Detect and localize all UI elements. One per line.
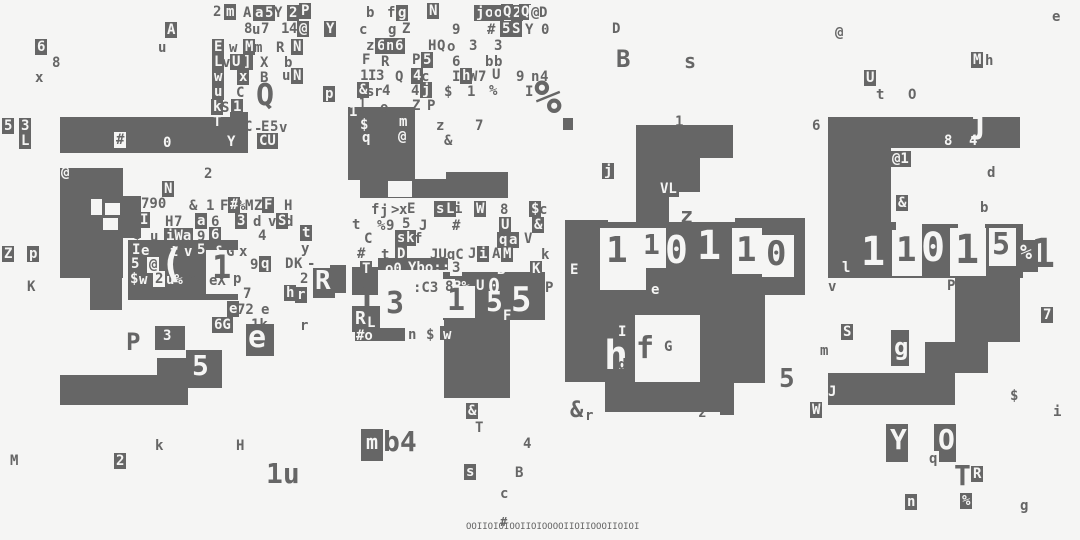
glyph: m	[366, 432, 378, 452]
glyph: t	[300, 225, 312, 241]
glyph: c	[359, 23, 367, 37]
glyph: #o	[356, 329, 373, 343]
glyph: E	[407, 202, 415, 216]
glyph: 9	[452, 23, 460, 37]
glyph: 3	[376, 69, 384, 83]
glyph: E	[570, 263, 578, 277]
glyph: r	[300, 319, 308, 333]
glyph: eX	[209, 274, 226, 288]
glyph: u	[252, 23, 260, 37]
glyph: p	[233, 272, 241, 286]
glyph: r	[585, 409, 593, 423]
glyph: 8	[944, 134, 952, 148]
glyph: B	[515, 466, 523, 480]
noise-window	[91, 199, 102, 215]
noise-block	[157, 358, 187, 375]
noise-block	[718, 126, 731, 156]
glyph: 2	[287, 5, 299, 21]
glyph: 5	[511, 283, 531, 317]
noise-block	[360, 179, 508, 198]
glyph: z	[366, 39, 374, 53]
glyph: P	[126, 330, 140, 354]
glyph: A	[243, 6, 251, 20]
glyph: 3	[494, 39, 502, 53]
glyph: $	[1010, 389, 1018, 403]
glyph: 1	[861, 232, 885, 272]
glyph: d	[285, 215, 293, 229]
glyph: 7	[174, 215, 182, 229]
glyph: W	[469, 70, 477, 84]
glyph: 1	[643, 231, 660, 259]
glyph: l	[842, 261, 850, 275]
glyph: #	[487, 23, 495, 37]
glyph: H	[284, 199, 292, 213]
glyph: g	[1020, 499, 1028, 513]
glyph: #	[357, 247, 365, 261]
glyph: n	[905, 494, 917, 510]
glyph: b	[980, 201, 988, 215]
noise-block	[563, 118, 573, 130]
glyph: p	[27, 246, 39, 262]
glyph: 1u	[266, 460, 300, 488]
glyph: &	[466, 403, 478, 419]
glyph: X	[260, 56, 268, 70]
glyph: g	[396, 5, 408, 21]
glyph: 1	[447, 286, 465, 316]
glyph: 8	[52, 56, 60, 70]
glyph: R	[381, 55, 389, 69]
glyph: b4	[383, 428, 417, 456]
glyph: g	[388, 23, 396, 37]
glyph: A	[165, 22, 177, 38]
glyph: &	[444, 134, 452, 148]
glyph: M	[10, 454, 18, 468]
glyph: F	[362, 53, 370, 67]
glyph: u	[150, 230, 158, 244]
glyph: q	[927, 451, 939, 467]
glyph: $	[444, 85, 452, 99]
glyph: 0	[541, 23, 549, 37]
glyph: 0	[163, 136, 171, 150]
glyph: 7	[243, 287, 251, 301]
glyph: Y	[525, 23, 533, 37]
glyph: Y	[274, 6, 282, 20]
glyph: N	[427, 3, 439, 19]
glyph: x	[237, 69, 249, 85]
glyph: @1	[890, 151, 911, 167]
glyph: C	[364, 232, 372, 246]
glyph: M	[245, 199, 253, 213]
glyph: 5	[197, 243, 205, 257]
glyph: Z	[412, 99, 420, 113]
noise-block	[720, 295, 765, 383]
glyph: N	[162, 181, 174, 197]
glyph: R	[276, 41, 284, 55]
glyph: f	[414, 232, 422, 246]
glyph: &	[532, 217, 544, 233]
glyph: o	[380, 101, 388, 115]
glyph: d	[618, 358, 626, 372]
glyph: j	[380, 204, 388, 218]
glyph: 7	[1041, 307, 1053, 323]
glyph: K	[294, 257, 302, 271]
glyph: k	[541, 248, 549, 262]
glyph: e	[248, 323, 266, 353]
glyph: y	[301, 242, 309, 256]
glyph: 5	[402, 217, 410, 231]
glyph: R	[971, 466, 983, 482]
glyph: u%	[166, 273, 183, 287]
glyph: 9	[516, 70, 524, 84]
glyph: T	[475, 421, 483, 435]
glyph: R	[355, 310, 366, 328]
noise-block	[828, 117, 1020, 148]
glyph: 3	[19, 118, 31, 134]
glyph: d	[987, 166, 995, 180]
glyph: e	[651, 283, 659, 297]
glyph: E	[212, 39, 224, 55]
glyph: @	[61, 166, 69, 180]
glyph: 1	[675, 115, 683, 129]
glyph: &	[570, 400, 583, 422]
glyph: $	[133, 228, 141, 242]
glyph: z	[436, 119, 444, 133]
glyph: 3	[163, 329, 171, 343]
glyph: J	[828, 385, 836, 399]
glyph: S	[841, 324, 853, 340]
glyph: A	[492, 247, 500, 261]
noise-window	[388, 181, 412, 197]
glyph: f	[636, 334, 654, 364]
noise-block	[925, 342, 988, 373]
glyph: VL	[658, 181, 679, 197]
glyph: L	[248, 271, 256, 285]
noise-block	[720, 383, 734, 415]
glyph: I	[525, 85, 533, 99]
glyph: t	[352, 218, 360, 232]
glyph: J	[468, 247, 476, 261]
glyph: u	[212, 84, 224, 100]
glyph: S	[221, 101, 229, 115]
glyph: @	[297, 21, 309, 37]
glyph: i	[1053, 405, 1061, 419]
glyph: g	[894, 335, 908, 359]
glyph: N	[291, 68, 303, 84]
glyph: &	[476, 344, 484, 358]
glyph: 1	[896, 233, 916, 267]
noise-window	[105, 203, 120, 215]
noise-block	[60, 117, 232, 153]
glyph: $	[130, 272, 138, 286]
glyph: ]	[358, 98, 366, 112]
glyph: P	[299, 3, 311, 19]
glyph: 5	[192, 352, 209, 380]
glyph: P	[412, 53, 420, 67]
glyph: I	[132, 243, 140, 257]
glyph: 5	[779, 366, 795, 392]
glyph: 3	[386, 289, 404, 319]
glyph: Q	[395, 70, 403, 84]
glyph: j	[420, 82, 432, 98]
glyph: 1	[697, 226, 721, 266]
glyph: @	[398, 130, 406, 144]
glyph: 4	[258, 229, 266, 243]
glyph: 0	[766, 237, 786, 271]
glyph: 0	[921, 228, 945, 268]
glyph: $	[426, 328, 434, 342]
glyph: K	[530, 261, 542, 277]
glyph: 6	[812, 119, 820, 133]
glyph: o0	[385, 262, 402, 276]
glyph: R	[315, 268, 331, 294]
glyph: h	[985, 54, 993, 68]
glyph: P	[545, 281, 553, 295]
glyph: 3	[450, 260, 462, 276]
noise-block	[605, 382, 730, 412]
glyph: Q	[437, 39, 445, 53]
glyph: F	[503, 309, 511, 323]
noise-window	[103, 218, 118, 230]
glyph: D	[612, 22, 620, 36]
glyph: f	[371, 203, 379, 217]
glyph: m	[820, 344, 828, 358]
glyph: U	[499, 217, 511, 233]
glyph: 4	[523, 437, 531, 451]
glyph: V	[524, 232, 532, 246]
glyph: v	[279, 121, 287, 135]
glyph: L	[19, 133, 31, 149]
glyph: z	[698, 406, 706, 420]
glyph: U	[492, 68, 500, 82]
glyph: H	[165, 215, 173, 229]
glyph: Y	[227, 135, 235, 149]
glyph: &	[189, 199, 197, 213]
glyph: 4	[411, 84, 419, 98]
glyph: x	[239, 245, 247, 259]
glyph: k	[155, 439, 163, 453]
glyph: 2	[204, 167, 212, 181]
glyph: f	[387, 6, 395, 20]
glyph: 3	[235, 213, 247, 229]
glyph: e	[1052, 10, 1060, 24]
glyph: F	[262, 197, 274, 213]
glyph: c	[539, 203, 547, 217]
glyph: 6	[35, 39, 47, 55]
glyph: w	[229, 41, 237, 55]
noise-block	[828, 373, 955, 405]
glyph: E	[261, 120, 269, 134]
glyph: H	[236, 439, 244, 453]
glyph: 5	[486, 288, 503, 316]
glyph: t	[876, 88, 884, 102]
glyph: #	[114, 132, 126, 148]
noise-block	[955, 278, 1020, 342]
glyph: O	[908, 88, 916, 102]
glyph: #	[452, 219, 460, 233]
glyph: 7	[478, 70, 486, 84]
glyph: :C3	[413, 281, 438, 295]
glyph: v	[184, 245, 192, 259]
glyph: w	[443, 328, 451, 342]
glyph: U	[476, 279, 484, 293]
glyph: 1	[231, 99, 243, 115]
glyph: 6	[209, 227, 221, 243]
glyph: v	[828, 280, 836, 294]
glyph: 7	[261, 22, 269, 36]
glyph: Ybo::	[408, 261, 450, 275]
glyph: CU	[257, 133, 278, 149]
glyph: e	[141, 244, 149, 258]
glyph: t	[381, 248, 389, 262]
glyph: 4	[969, 134, 977, 148]
glyph: Q	[256, 81, 274, 111]
glyph: &	[896, 195, 908, 211]
glyph: 6G	[212, 317, 233, 333]
glyph: 6	[452, 55, 460, 69]
glyph: 790	[141, 197, 166, 211]
glyph: @	[835, 26, 843, 40]
glyph: K	[27, 280, 35, 294]
glyph: i	[477, 246, 489, 262]
glyph: 9	[386, 219, 394, 233]
glyph: 1	[206, 199, 214, 213]
glyph: w	[139, 273, 147, 287]
glyph: Y	[890, 426, 907, 454]
glyph: W	[474, 201, 486, 217]
glyph: 2	[213, 5, 221, 19]
glyph: c	[500, 487, 508, 501]
glyph: 7	[475, 119, 483, 133]
glyph: ]	[241, 54, 253, 70]
glyph: T	[213, 115, 221, 129]
glyph: n	[408, 328, 416, 342]
glyph: Z	[402, 22, 410, 36]
glyph: %	[489, 84, 497, 98]
glyph: $	[188, 273, 196, 287]
glyph: U	[864, 70, 876, 86]
glyph: d	[253, 215, 261, 229]
glyph: %	[960, 493, 972, 509]
glyph: 1	[1031, 234, 1055, 274]
glyph: 6	[393, 38, 405, 54]
glyph: 1	[467, 85, 475, 99]
glyph: m	[399, 115, 407, 129]
glyph: C	[244, 120, 252, 134]
glyph: 72	[237, 303, 254, 317]
glyph: q	[362, 131, 370, 145]
glyph: OOIIOIOIOOIIOIOOOOIIOIIOOOIIOIOI	[466, 523, 639, 532]
glyph: o	[447, 40, 455, 54]
glyph: 3	[469, 39, 477, 53]
glyph: B	[616, 47, 630, 71]
glyph: s	[464, 464, 476, 480]
glyph: i	[454, 202, 462, 216]
glyph: O	[938, 426, 955, 454]
glyph: D	[539, 6, 547, 20]
glyph: 1	[736, 233, 756, 267]
glyph: P	[947, 279, 955, 293]
captcha-canvas: 2mAa5Y2PbfgNjooQ2Q@DeA8u714@YcgZ9#5SY0D@…	[0, 0, 1080, 540]
glyph: e	[261, 303, 269, 317]
glyph: 5	[421, 52, 433, 68]
glyph: b	[366, 6, 374, 20]
glyph: 1	[955, 230, 979, 270]
glyph: M	[971, 52, 983, 68]
glyph: 1	[90, 246, 117, 290]
glyph: 1	[606, 233, 628, 269]
glyph: C	[236, 86, 244, 100]
glyph: 1	[349, 105, 357, 119]
glyph: M	[501, 246, 513, 262]
glyph: 5	[270, 120, 278, 134]
glyph: 2	[300, 272, 308, 286]
glyph: a	[195, 213, 207, 229]
glyph: T	[954, 462, 971, 490]
glyph: s	[684, 51, 696, 71]
noise-block	[60, 375, 188, 405]
glyph: G	[664, 340, 672, 354]
glyph: 5	[992, 230, 1010, 260]
glyph: %	[377, 219, 385, 233]
glyph: Y	[324, 21, 336, 37]
glyph: 5	[131, 257, 139, 271]
glyph: w	[212, 69, 224, 85]
glyph: S	[417, 115, 425, 129]
glyph: T	[360, 261, 372, 277]
glyph: m	[254, 41, 262, 55]
glyph: 2	[153, 271, 165, 287]
glyph: S	[510, 21, 522, 37]
glyph: 4	[382, 84, 390, 98]
glyph: 5	[2, 118, 14, 134]
glyph: I	[138, 212, 150, 228]
glyph: N	[291, 39, 303, 55]
glyph: D	[395, 246, 407, 262]
glyph: z	[680, 206, 693, 228]
glyph: j	[602, 163, 614, 179]
glyph: u	[158, 41, 166, 55]
glyph: m	[224, 4, 236, 20]
glyph: %	[534, 74, 562, 120]
glyph: H	[428, 39, 436, 53]
glyph: W	[810, 402, 822, 418]
glyph: p	[323, 86, 335, 102]
glyph: 2	[114, 453, 126, 469]
glyph: q	[259, 256, 271, 272]
glyph: r	[295, 287, 307, 303]
glyph: x	[35, 71, 43, 85]
glyph: 0	[665, 231, 688, 269]
glyph: 8	[500, 203, 508, 217]
glyph: Z	[2, 246, 14, 262]
glyph: P	[427, 99, 435, 113]
glyph: u	[282, 69, 290, 83]
